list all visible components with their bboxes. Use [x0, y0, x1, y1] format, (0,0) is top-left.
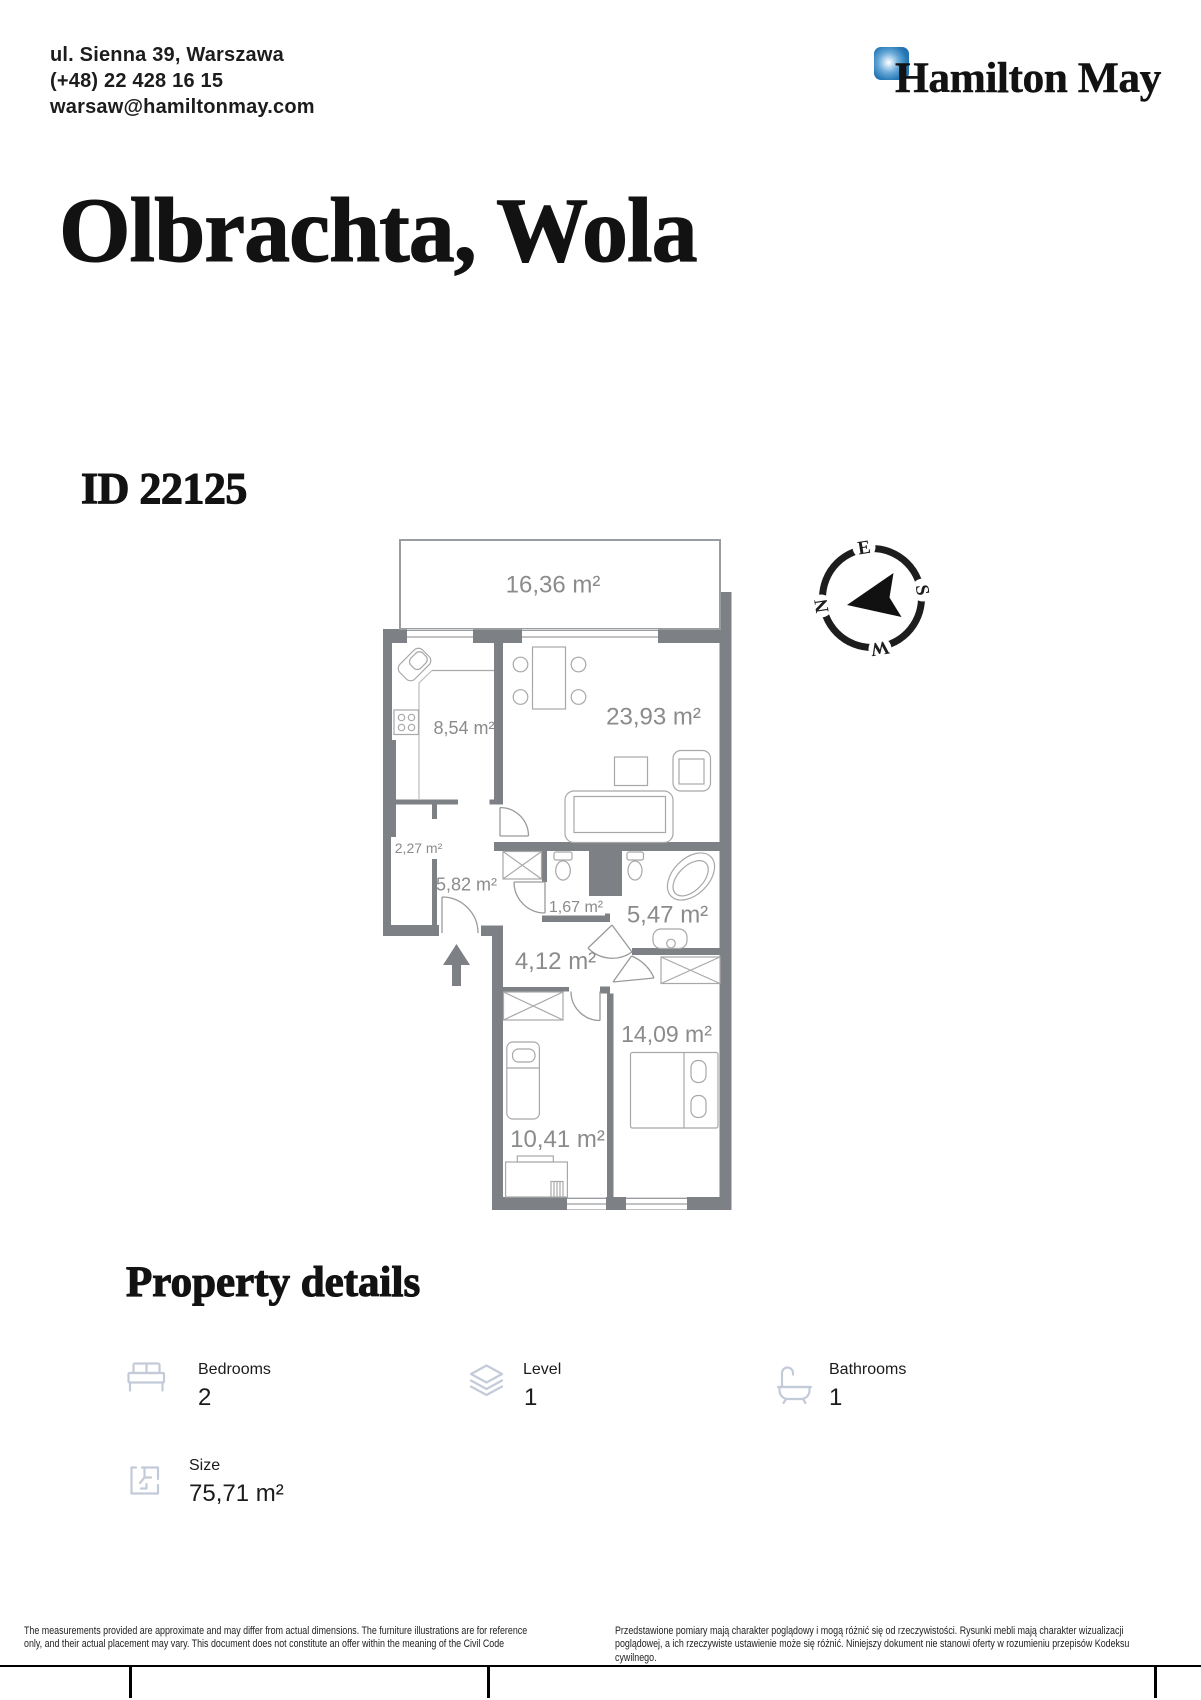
- svg-text:W: W: [869, 636, 891, 660]
- svg-text:5,47 m²: 5,47 m²: [627, 902, 708, 929]
- svg-text:16,36 m²: 16,36 m²: [506, 572, 601, 599]
- svg-text:14,09 m²: 14,09 m²: [621, 1021, 712, 1047]
- svg-text:8,54 m²: 8,54 m²: [433, 718, 494, 738]
- svg-text:5,82 m²: 5,82 m²: [436, 875, 497, 895]
- svg-text:2,27 m²: 2,27 m²: [395, 840, 443, 856]
- svg-text:1,67 m²: 1,67 m²: [549, 899, 604, 916]
- svg-text:4,12 m²: 4,12 m²: [515, 948, 596, 975]
- svg-text:23,93 m²: 23,93 m²: [606, 704, 701, 731]
- svg-text:10,41 m²: 10,41 m²: [510, 1126, 605, 1153]
